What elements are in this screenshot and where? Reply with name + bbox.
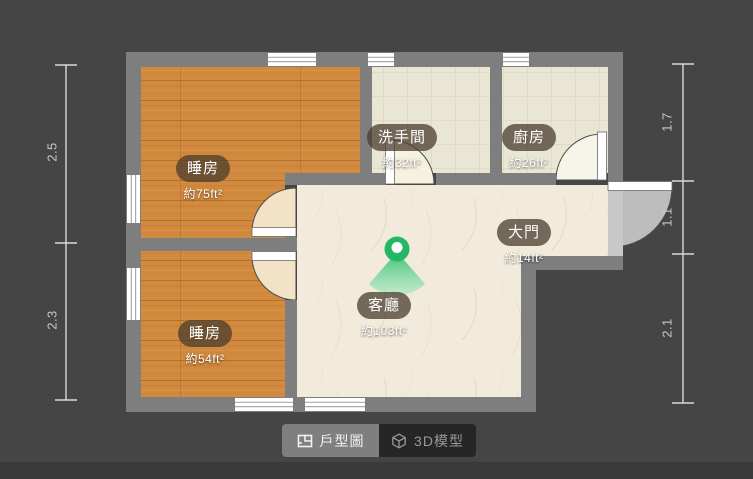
tab-label: 3D模型	[414, 431, 464, 451]
marker-dot-inner	[392, 242, 403, 253]
dimension-label-right-3: 2.1	[660, 318, 675, 338]
dimension-line-left	[55, 65, 77, 400]
wall-bathroom-kitchen	[490, 52, 502, 185]
window-top-kitchen	[503, 53, 529, 66]
dimension-label-left-2: 2.3	[45, 310, 60, 330]
wall-entrance-bottom	[536, 256, 623, 270]
wall-left	[126, 52, 141, 412]
wall-bedroom2-living	[285, 300, 297, 397]
floorplan-viewer: 睡房 約75ft² 睡房 約54ft² 洗手間 約32ft² 廚房 約26ft²…	[0, 0, 753, 479]
window-bottom-bedroom2	[235, 398, 293, 411]
wall-bedroom1-living-a	[285, 173, 297, 185]
dimension-line-right	[672, 64, 694, 403]
window-left-bedroom2	[127, 268, 140, 320]
entrance-opening	[608, 183, 623, 256]
dimension-label-right-2: 1.1	[660, 207, 675, 227]
bedroom-2-door-leaf	[252, 252, 296, 261]
wall-bedroom1-bathroom	[360, 52, 372, 185]
room-floors	[141, 67, 608, 397]
tab-floorplan[interactable]: 戶型圖	[282, 424, 379, 457]
kitchen-door-leaf	[598, 132, 607, 180]
tab-3d-model[interactable]: 3D模型	[379, 424, 476, 457]
living-room-floor	[297, 185, 608, 397]
view-mode-tabs: 戶型圖 3D模型	[282, 424, 476, 457]
wall-right-lower	[521, 256, 536, 412]
window-bottom-living	[305, 398, 365, 411]
bottom-bar	[0, 462, 753, 479]
wall-north-corridor-a	[297, 173, 386, 185]
bedroom-1-door-leaf	[252, 228, 296, 237]
cube-3d-icon	[391, 433, 407, 449]
entrance-door-leaf	[608, 182, 672, 191]
bathroom-door-leaf	[386, 140, 395, 184]
window-top-bedroom1	[268, 53, 316, 66]
wall-between-bedrooms	[141, 238, 297, 251]
floorplan-icon	[297, 433, 313, 449]
wall-right-upper	[608, 52, 623, 183]
window-top-bathroom	[368, 53, 394, 66]
tab-label: 戶型圖	[320, 431, 365, 451]
wall-north-corridor-b	[436, 173, 556, 185]
window-left-bedroom1	[127, 175, 140, 223]
floorplan-canvas	[0, 0, 753, 479]
dimension-label-left-1: 2.5	[45, 142, 60, 162]
dimension-label-right-1: 1.7	[660, 112, 675, 132]
